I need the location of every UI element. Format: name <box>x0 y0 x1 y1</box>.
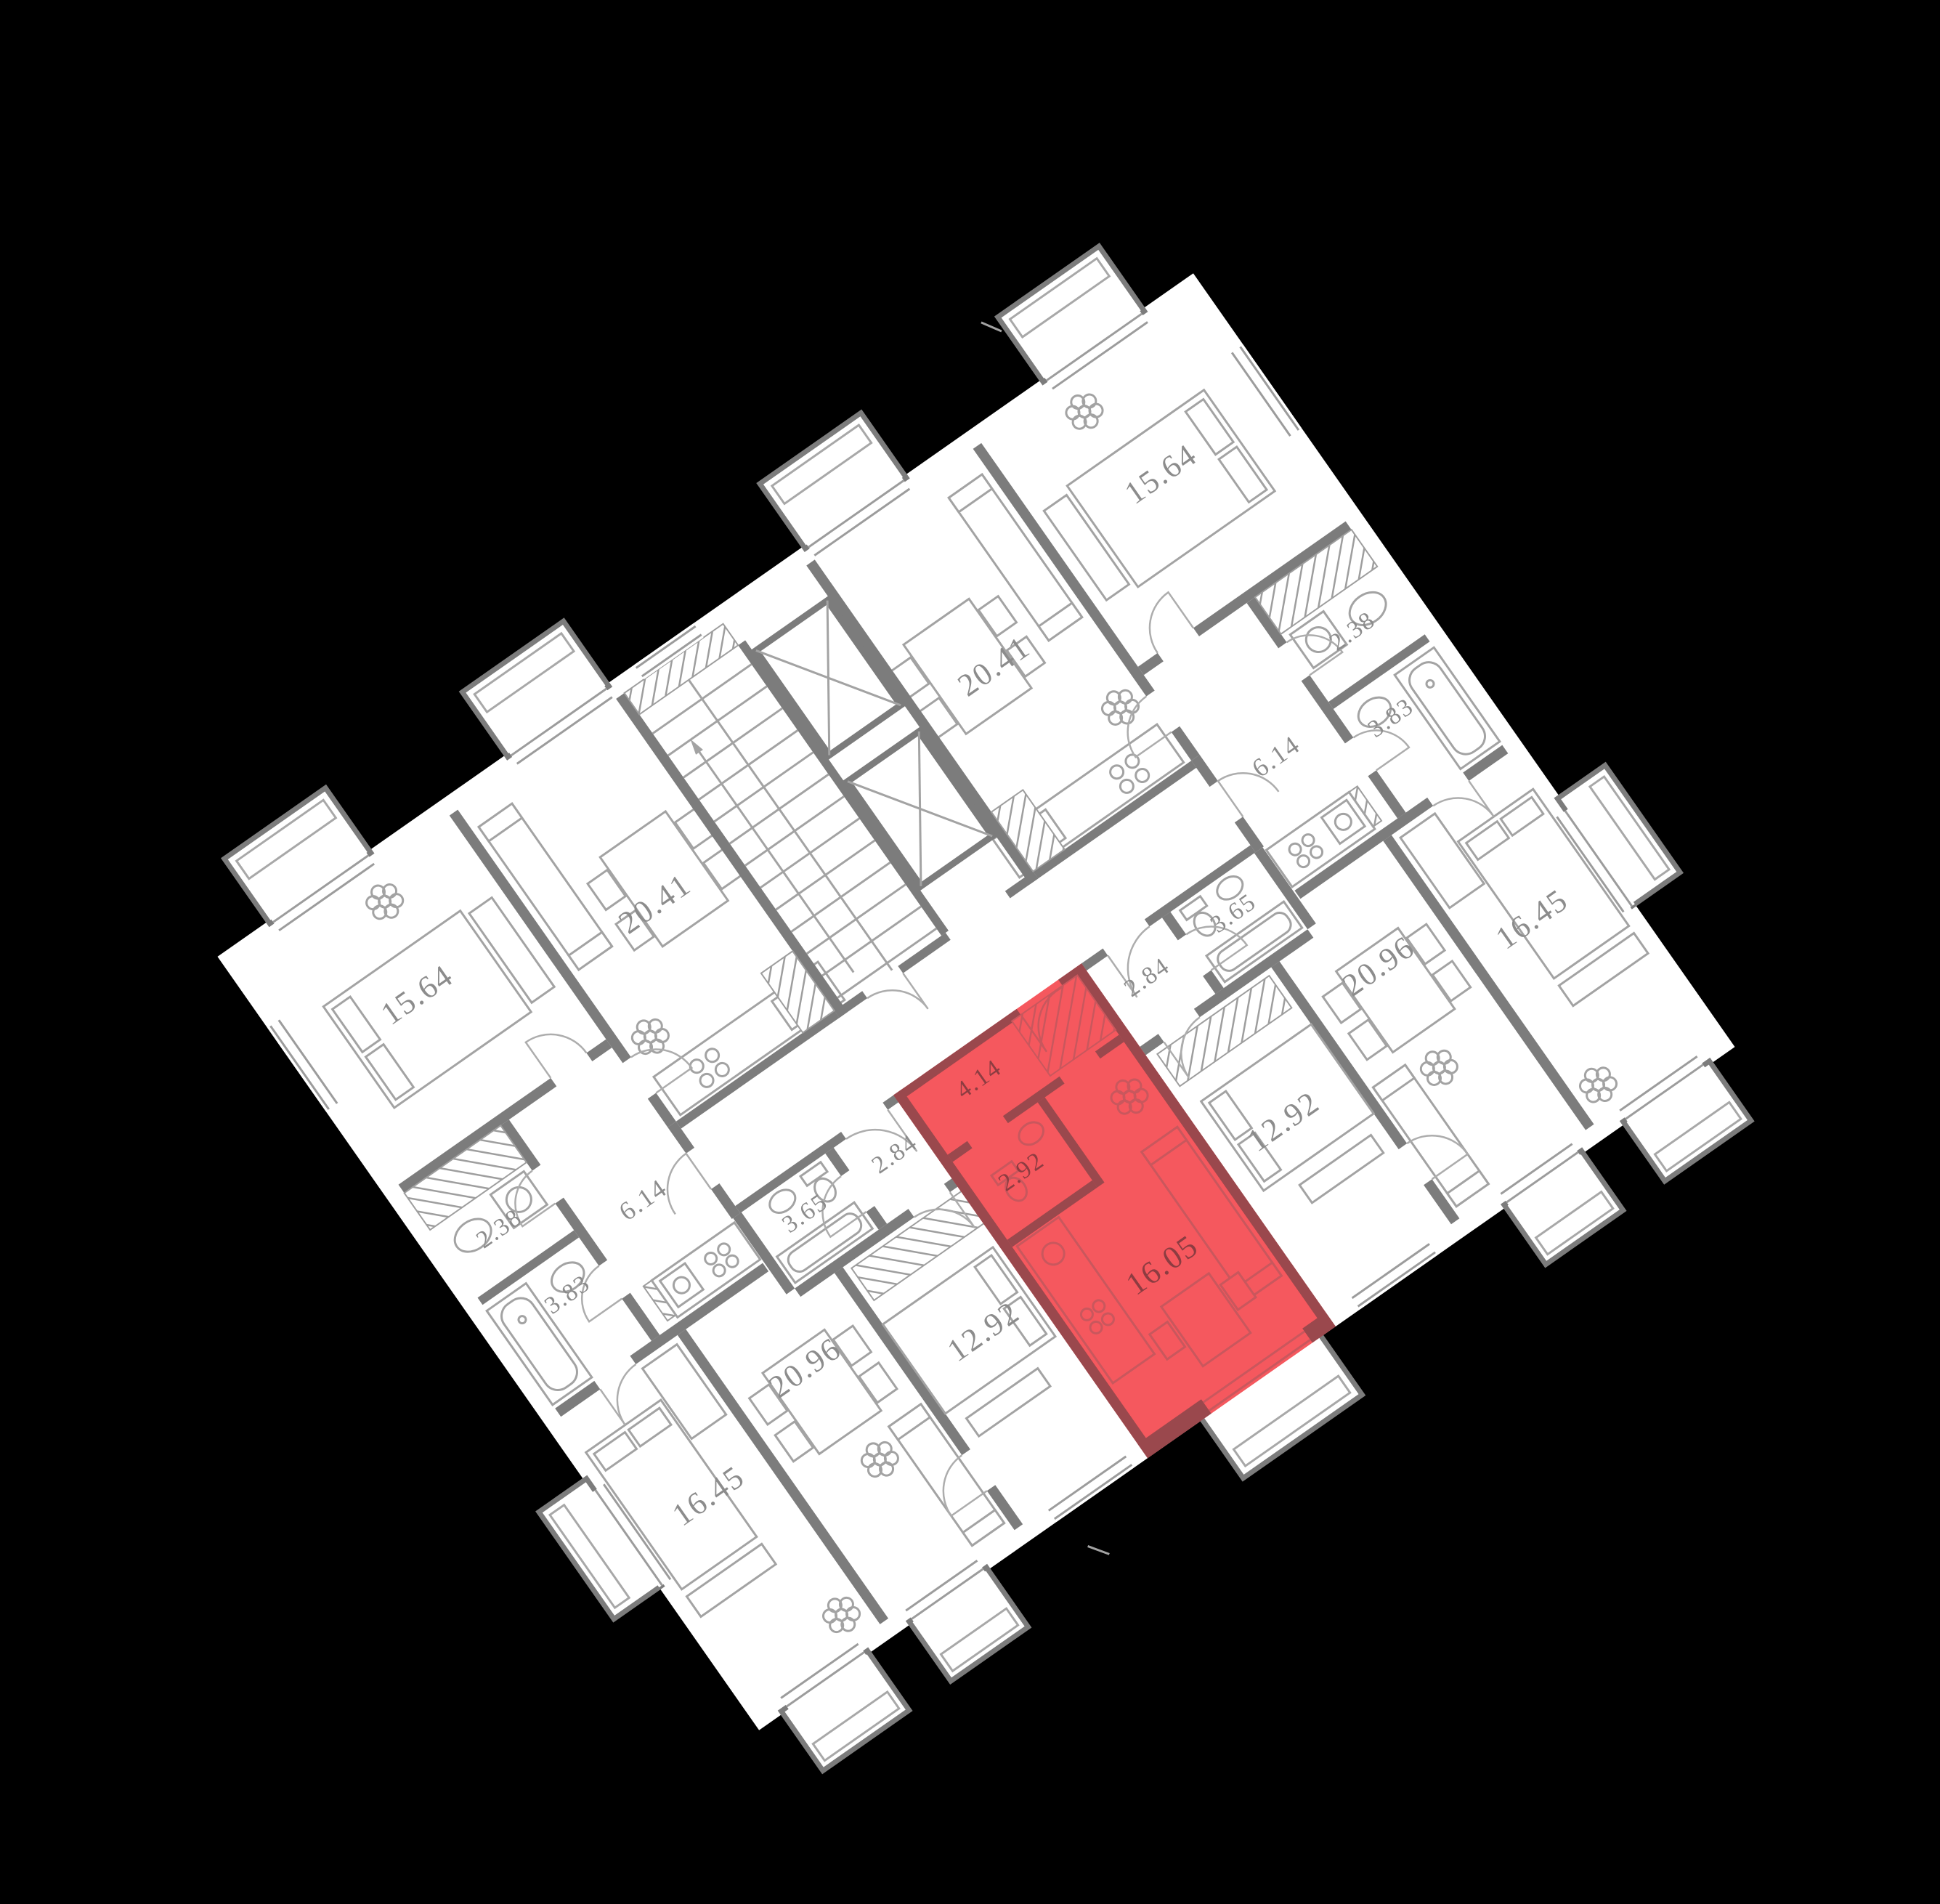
floor-plan: 20.4115.642.383.836.1416.452.843.6520.96… <box>0 0 1940 1904</box>
floor-plan-canvas: 20.4115.642.383.836.1416.452.843.6520.96… <box>0 0 1940 1904</box>
